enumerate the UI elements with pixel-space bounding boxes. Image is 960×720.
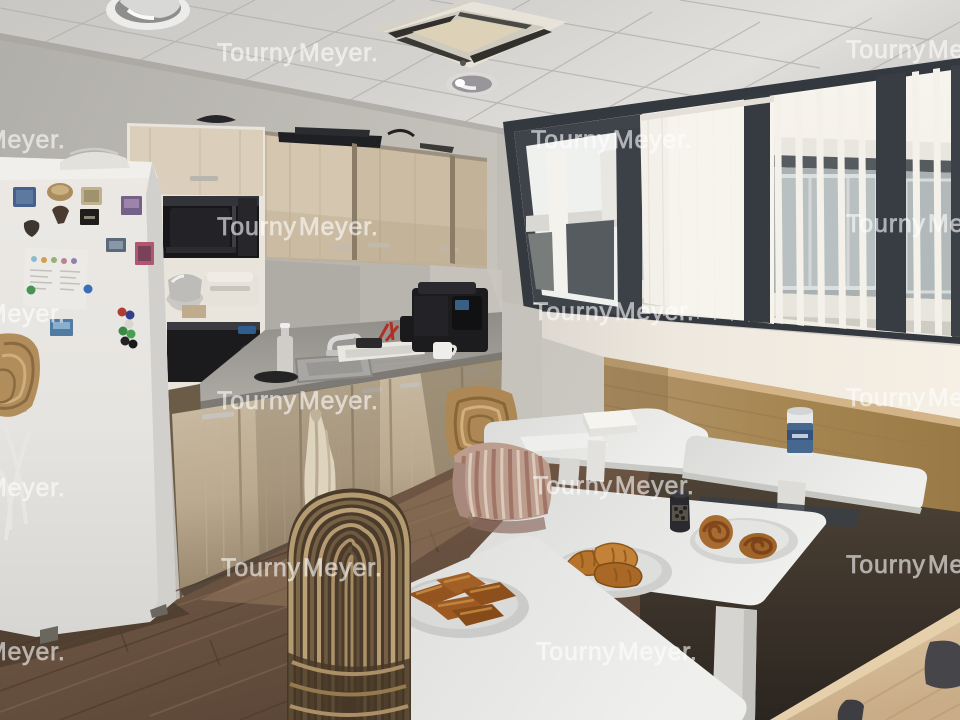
svg-text:TournyMeyer.: TournyMeyer. [0,474,66,502]
svg-text:TournyMeyer.: TournyMeyer. [0,126,66,154]
svg-text:TournyMeyer.: TournyMeyer. [0,300,66,328]
svg-text:TournyMeyer.: TournyMeyer. [846,551,960,579]
svg-text:TournyMeyer.: TournyMeyer. [0,638,66,666]
svg-text:TournyMeyer.: TournyMeyer. [846,384,960,412]
svg-text:TournyMeyer.: TournyMeyer. [846,36,960,64]
svg-text:TournyMeyer.: TournyMeyer. [846,210,960,238]
